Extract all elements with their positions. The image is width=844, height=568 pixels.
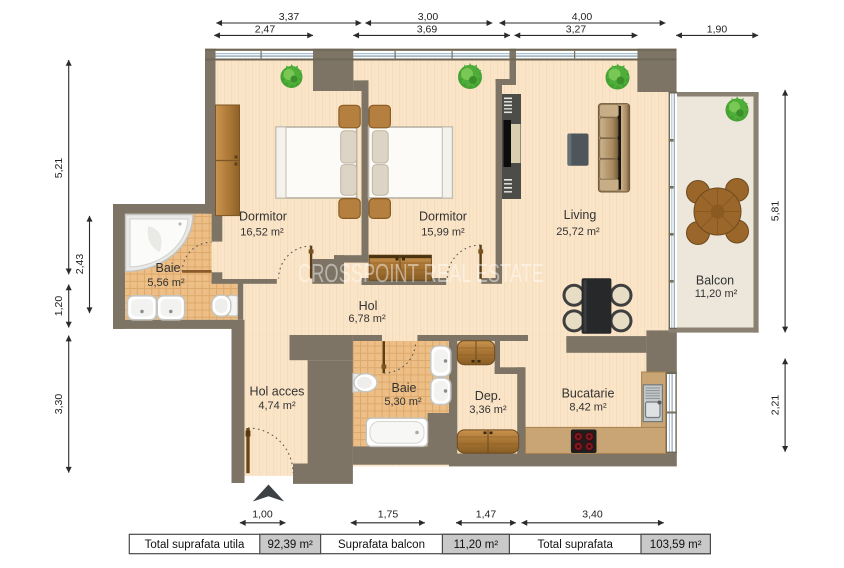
svg-text:4,00: 4,00 — [572, 11, 593, 23]
svg-text:CROSSPOINT REAL ESTATE: CROSSPOINT REAL ESTATE — [298, 258, 544, 288]
svg-text:15,99 m²: 15,99 m² — [421, 227, 465, 239]
svg-text:25,72 m²: 25,72 m² — [556, 226, 600, 238]
svg-text:3,00: 3,00 — [418, 11, 439, 23]
svg-text:Baie: Baie — [155, 261, 180, 275]
svg-text:Dormitor: Dormitor — [419, 210, 467, 224]
svg-text:Total suprafata: Total suprafata — [537, 539, 613, 551]
svg-text:Dep.: Dep. — [475, 389, 501, 403]
svg-text:1,20: 1,20 — [53, 296, 65, 317]
svg-text:6,78 m²: 6,78 m² — [348, 313, 386, 325]
svg-text:3,40: 3,40 — [582, 509, 603, 521]
svg-text:3,27: 3,27 — [566, 24, 587, 36]
svg-text:Living: Living — [564, 208, 597, 222]
svg-text:103,59 m²: 103,59 m² — [650, 539, 702, 551]
svg-text:Bucatarie: Bucatarie — [562, 387, 615, 401]
svg-text:8,42 m²: 8,42 m² — [569, 402, 607, 414]
svg-text:2,43: 2,43 — [74, 254, 86, 275]
svg-text:5,21: 5,21 — [53, 158, 65, 179]
svg-text:1,47: 1,47 — [476, 509, 497, 521]
svg-text:1,90: 1,90 — [707, 24, 728, 36]
svg-text:Baie: Baie — [391, 381, 416, 395]
svg-text:11,20 m²: 11,20 m² — [454, 539, 499, 551]
svg-text:16,52 m²: 16,52 m² — [240, 227, 284, 239]
svg-text:3,36 m²: 3,36 m² — [469, 404, 507, 416]
svg-text:3,69: 3,69 — [417, 24, 438, 36]
svg-text:5,56 m²: 5,56 m² — [147, 277, 185, 289]
svg-text:2,47: 2,47 — [255, 24, 276, 36]
svg-text:Hol: Hol — [359, 299, 378, 313]
svg-text:Total suprafata utila: Total suprafata utila — [145, 539, 245, 551]
svg-text:5,81: 5,81 — [770, 201, 782, 222]
svg-text:1,75: 1,75 — [378, 509, 399, 521]
svg-text:4,74 m²: 4,74 m² — [258, 400, 296, 412]
svg-text:Hol acces: Hol acces — [250, 385, 305, 399]
svg-text:2,21: 2,21 — [770, 395, 782, 416]
svg-text:Balcon: Balcon — [696, 274, 734, 288]
svg-text:3,37: 3,37 — [279, 11, 300, 23]
svg-text:92,39 m²: 92,39 m² — [268, 539, 314, 551]
svg-text:Suprafata balcon: Suprafata balcon — [338, 539, 425, 551]
svg-text:3,30: 3,30 — [53, 394, 65, 415]
svg-text:1,00: 1,00 — [252, 509, 273, 521]
svg-text:11,20 m²: 11,20 m² — [695, 288, 738, 300]
svg-text:Dormitor: Dormitor — [239, 210, 287, 224]
svg-text:5,30 m²: 5,30 m² — [384, 396, 422, 408]
